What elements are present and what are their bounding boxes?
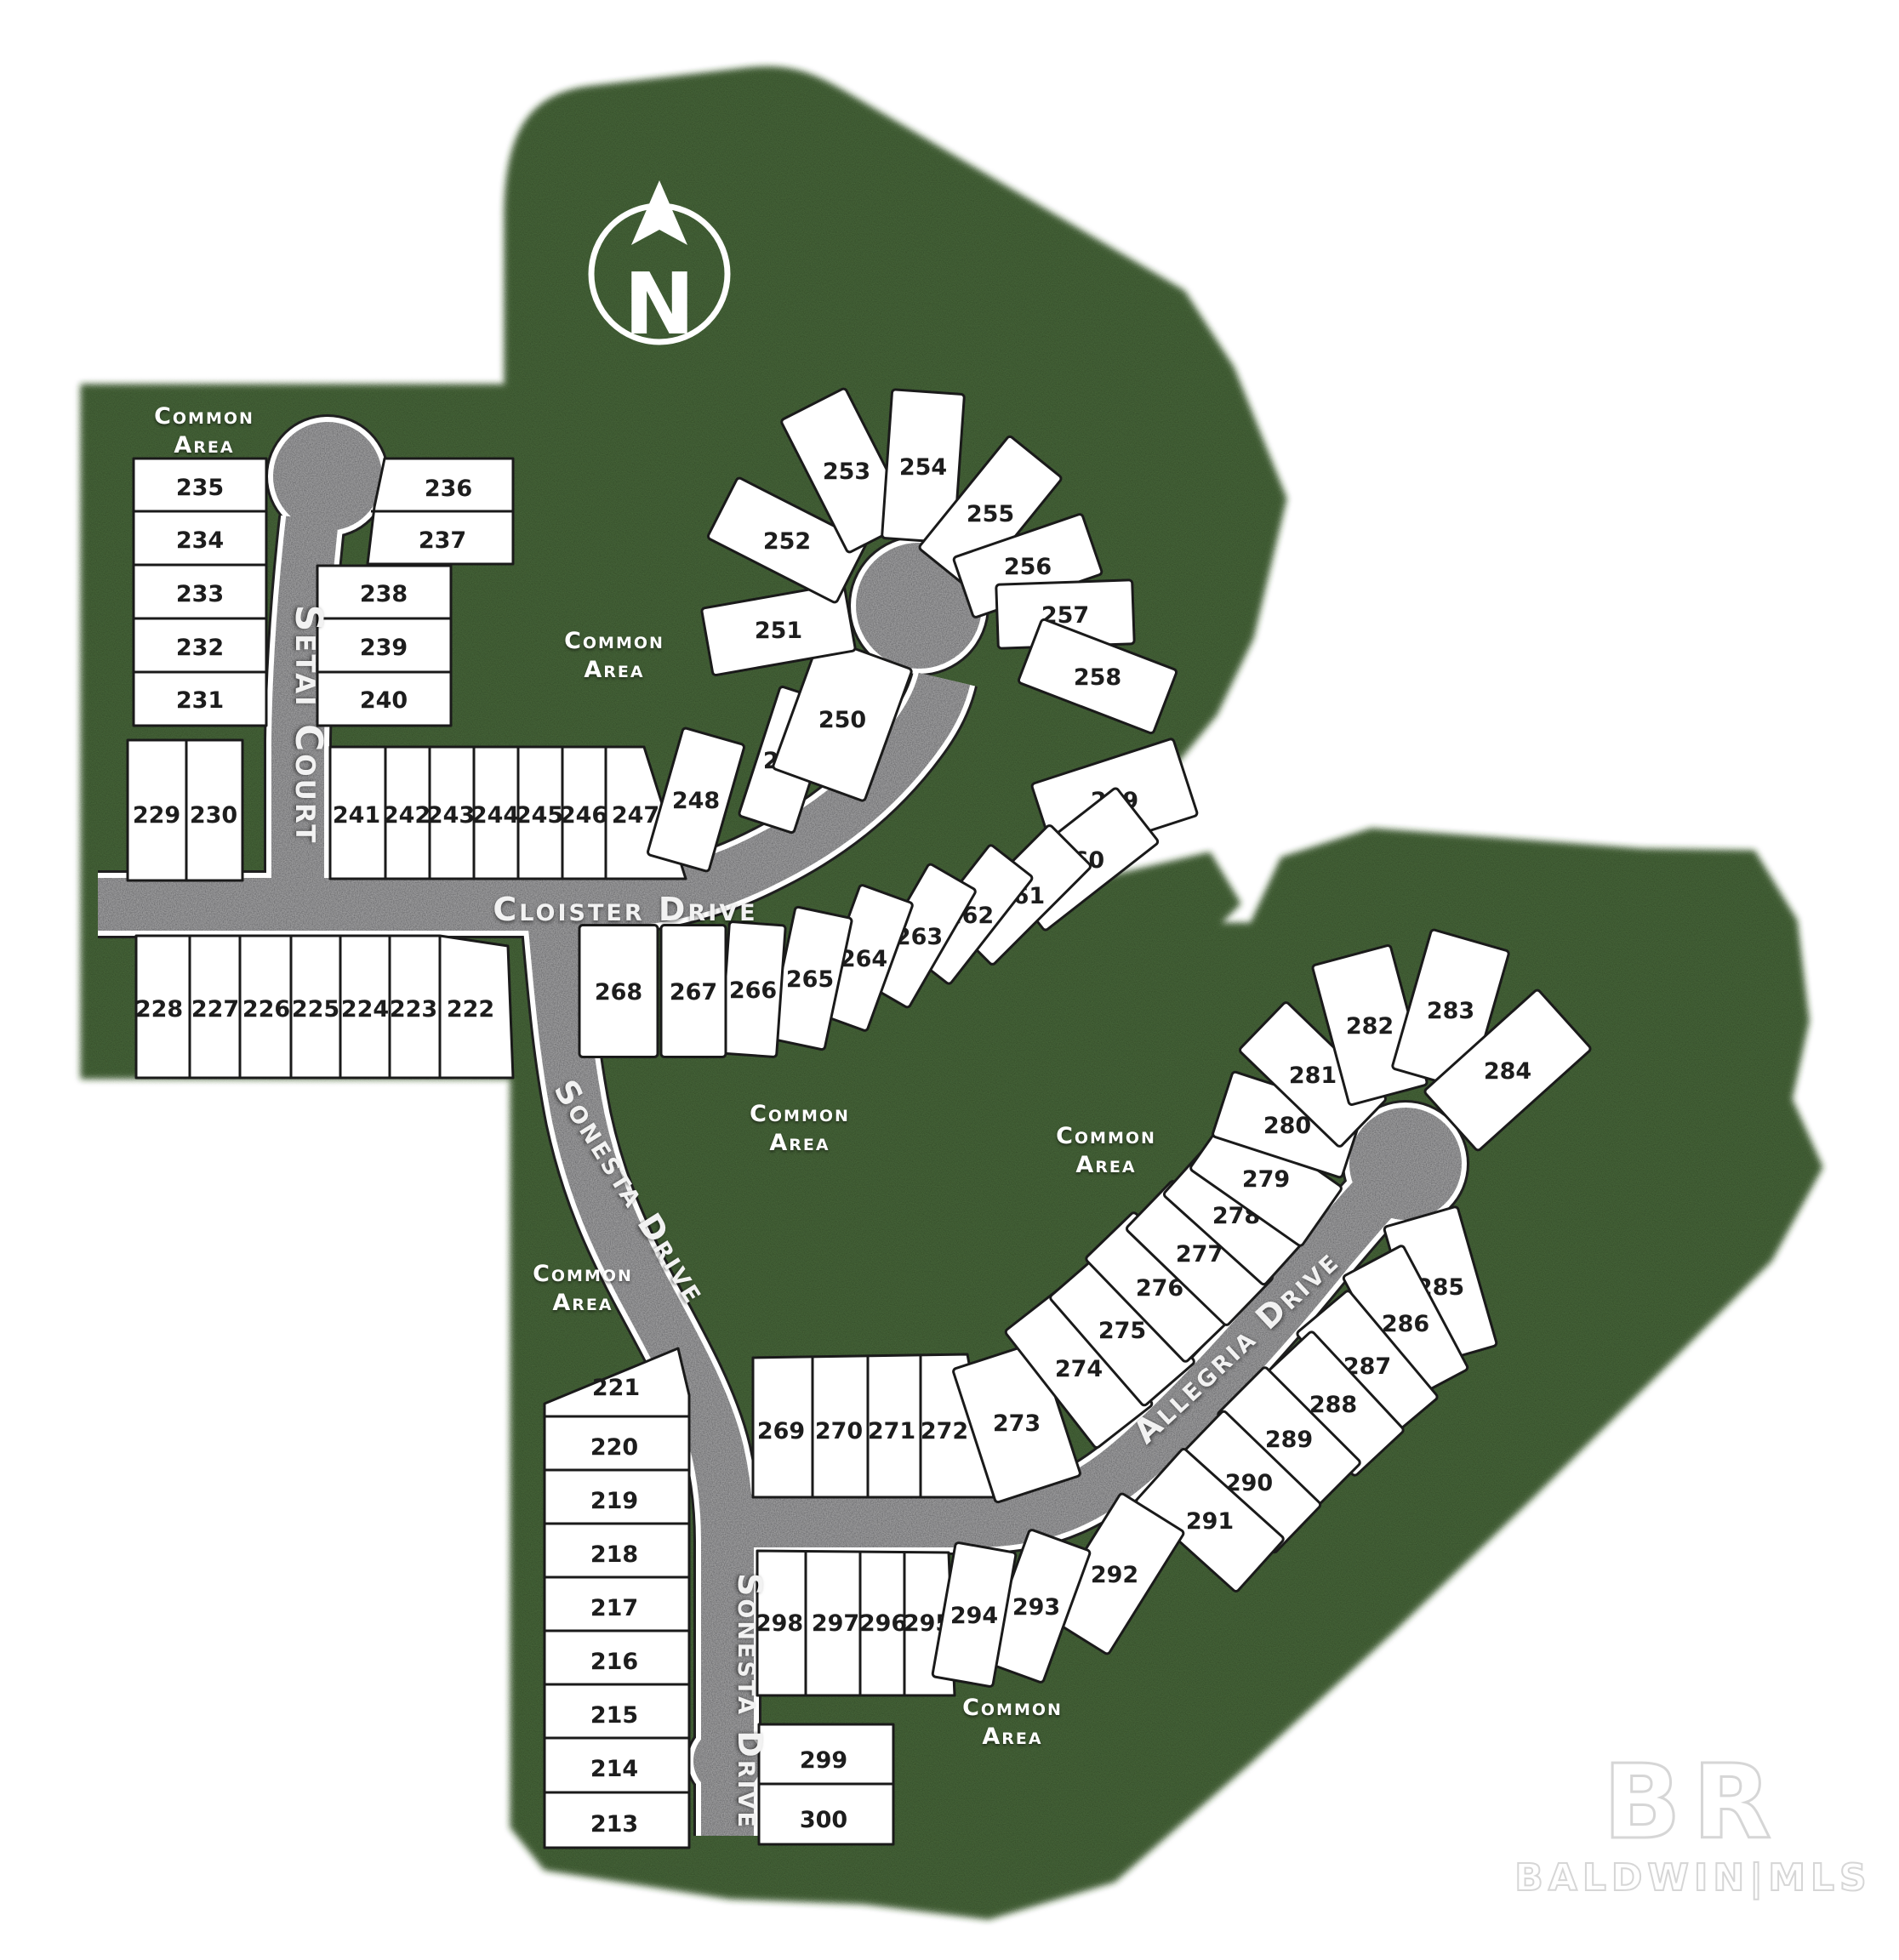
lot-271-label: 271 xyxy=(868,1418,915,1444)
lot-282-label: 282 xyxy=(1346,1013,1394,1040)
lot-213-label: 213 xyxy=(590,1811,638,1837)
lot-265-label: 265 xyxy=(786,966,834,993)
lot-267-label: 267 xyxy=(670,979,717,1006)
lot-247-label: 247 xyxy=(612,802,659,829)
lot-288-label: 288 xyxy=(1309,1392,1357,1418)
lot-245-label: 245 xyxy=(516,802,563,829)
lot-244-label: 244 xyxy=(471,802,519,829)
lot-241-label: 241 xyxy=(333,802,380,829)
lot-250-label: 250 xyxy=(818,707,866,733)
lot-228-label: 228 xyxy=(135,996,183,1023)
lot-268-label: 268 xyxy=(595,979,642,1006)
lot-214-label: 214 xyxy=(590,1756,638,1782)
lot-291-label: 291 xyxy=(1186,1508,1234,1535)
lot-272-label: 272 xyxy=(921,1418,968,1444)
lot-239-label: 239 xyxy=(360,635,408,661)
lot-246-label: 246 xyxy=(560,802,607,829)
street-label-sonesta-drive-lower: Sonesta Drive xyxy=(731,1573,768,1830)
lot-289-label: 289 xyxy=(1265,1427,1313,1453)
lot-215-label: 215 xyxy=(590,1702,638,1729)
lot-220-label: 220 xyxy=(590,1434,638,1461)
lot-297-label: 297 xyxy=(812,1610,859,1637)
lot-233-label: 233 xyxy=(176,581,224,607)
lot-217-label: 217 xyxy=(590,1595,638,1621)
lot-216-label: 216 xyxy=(590,1649,638,1675)
lot-281-label: 281 xyxy=(1289,1063,1337,1089)
lot-226-label: 226 xyxy=(242,996,290,1023)
lot-234-label: 234 xyxy=(176,527,224,554)
lot-286-label: 286 xyxy=(1382,1311,1429,1337)
lot-280-label: 280 xyxy=(1263,1113,1311,1139)
lot-219-label: 219 xyxy=(590,1488,638,1514)
lot-248-label: 248 xyxy=(672,788,720,814)
lot-273-label: 273 xyxy=(993,1410,1041,1437)
lot-300-label: 300 xyxy=(800,1807,847,1833)
lot-284-label: 284 xyxy=(1484,1058,1531,1085)
lot-236-label: 236 xyxy=(425,476,472,502)
lot-227-label: 227 xyxy=(191,996,239,1023)
lot-251-label: 251 xyxy=(755,618,802,644)
lot-240-label: 240 xyxy=(360,687,408,714)
lot-269-label: 269 xyxy=(757,1418,805,1444)
lot-242-label: 242 xyxy=(383,802,431,829)
lot-292-label: 292 xyxy=(1091,1562,1138,1588)
lot-254-label: 254 xyxy=(899,454,947,481)
lot-225-label: 225 xyxy=(292,996,339,1023)
lot-299-label: 299 xyxy=(800,1747,847,1774)
lot-223-label: 223 xyxy=(390,996,437,1023)
lot-222-label: 222 xyxy=(447,996,494,1023)
lot-266-label: 266 xyxy=(729,977,777,1004)
lot-253-label: 253 xyxy=(823,459,870,485)
culdesac-allegria xyxy=(1349,1108,1462,1220)
lot-279-label: 279 xyxy=(1242,1166,1290,1193)
lot-270-label: 270 xyxy=(815,1418,863,1444)
lot-252-label: 252 xyxy=(763,528,811,555)
lot-255-label: 255 xyxy=(967,501,1014,527)
lot-296-label: 296 xyxy=(859,1610,907,1637)
lot-277-label: 277 xyxy=(1176,1241,1223,1268)
lot-221-label: 221 xyxy=(592,1375,640,1401)
lot-229-label: 229 xyxy=(133,802,180,829)
lot-258-label: 258 xyxy=(1074,664,1121,691)
lot-218-label: 218 xyxy=(590,1541,638,1568)
lot-243-label: 243 xyxy=(427,802,475,829)
lot-256-label: 256 xyxy=(1004,554,1052,580)
lot-238-label: 238 xyxy=(360,581,408,607)
plat-map: 2352342332322312362372382392402292302412… xyxy=(0,0,1899,1960)
lot-237-label: 237 xyxy=(419,527,466,554)
lot-235-label: 235 xyxy=(176,475,224,501)
lot-283-label: 283 xyxy=(1427,998,1474,1024)
street-label-cloister-drive: Cloister Drive xyxy=(493,891,757,928)
lot-224-label: 224 xyxy=(341,996,389,1023)
lot-293-label: 293 xyxy=(1012,1594,1060,1621)
lot-232-label: 232 xyxy=(176,635,224,661)
lot-274-label: 274 xyxy=(1055,1356,1103,1382)
lot-231-label: 231 xyxy=(176,687,224,714)
culdesac-setai xyxy=(273,422,382,531)
watermark-text: BALDWIN|MLS xyxy=(1514,1856,1871,1900)
compass-n-label: N xyxy=(624,254,695,354)
watermark: BR BALDWIN|MLS xyxy=(1514,1744,1871,1900)
watermark-logo: BR xyxy=(1603,1744,1783,1862)
lot-230-label: 230 xyxy=(190,802,237,829)
street-label-setai-court: Setai Court xyxy=(287,605,330,846)
lot-275-label: 275 xyxy=(1098,1318,1146,1344)
lot-294-label: 294 xyxy=(950,1603,998,1629)
